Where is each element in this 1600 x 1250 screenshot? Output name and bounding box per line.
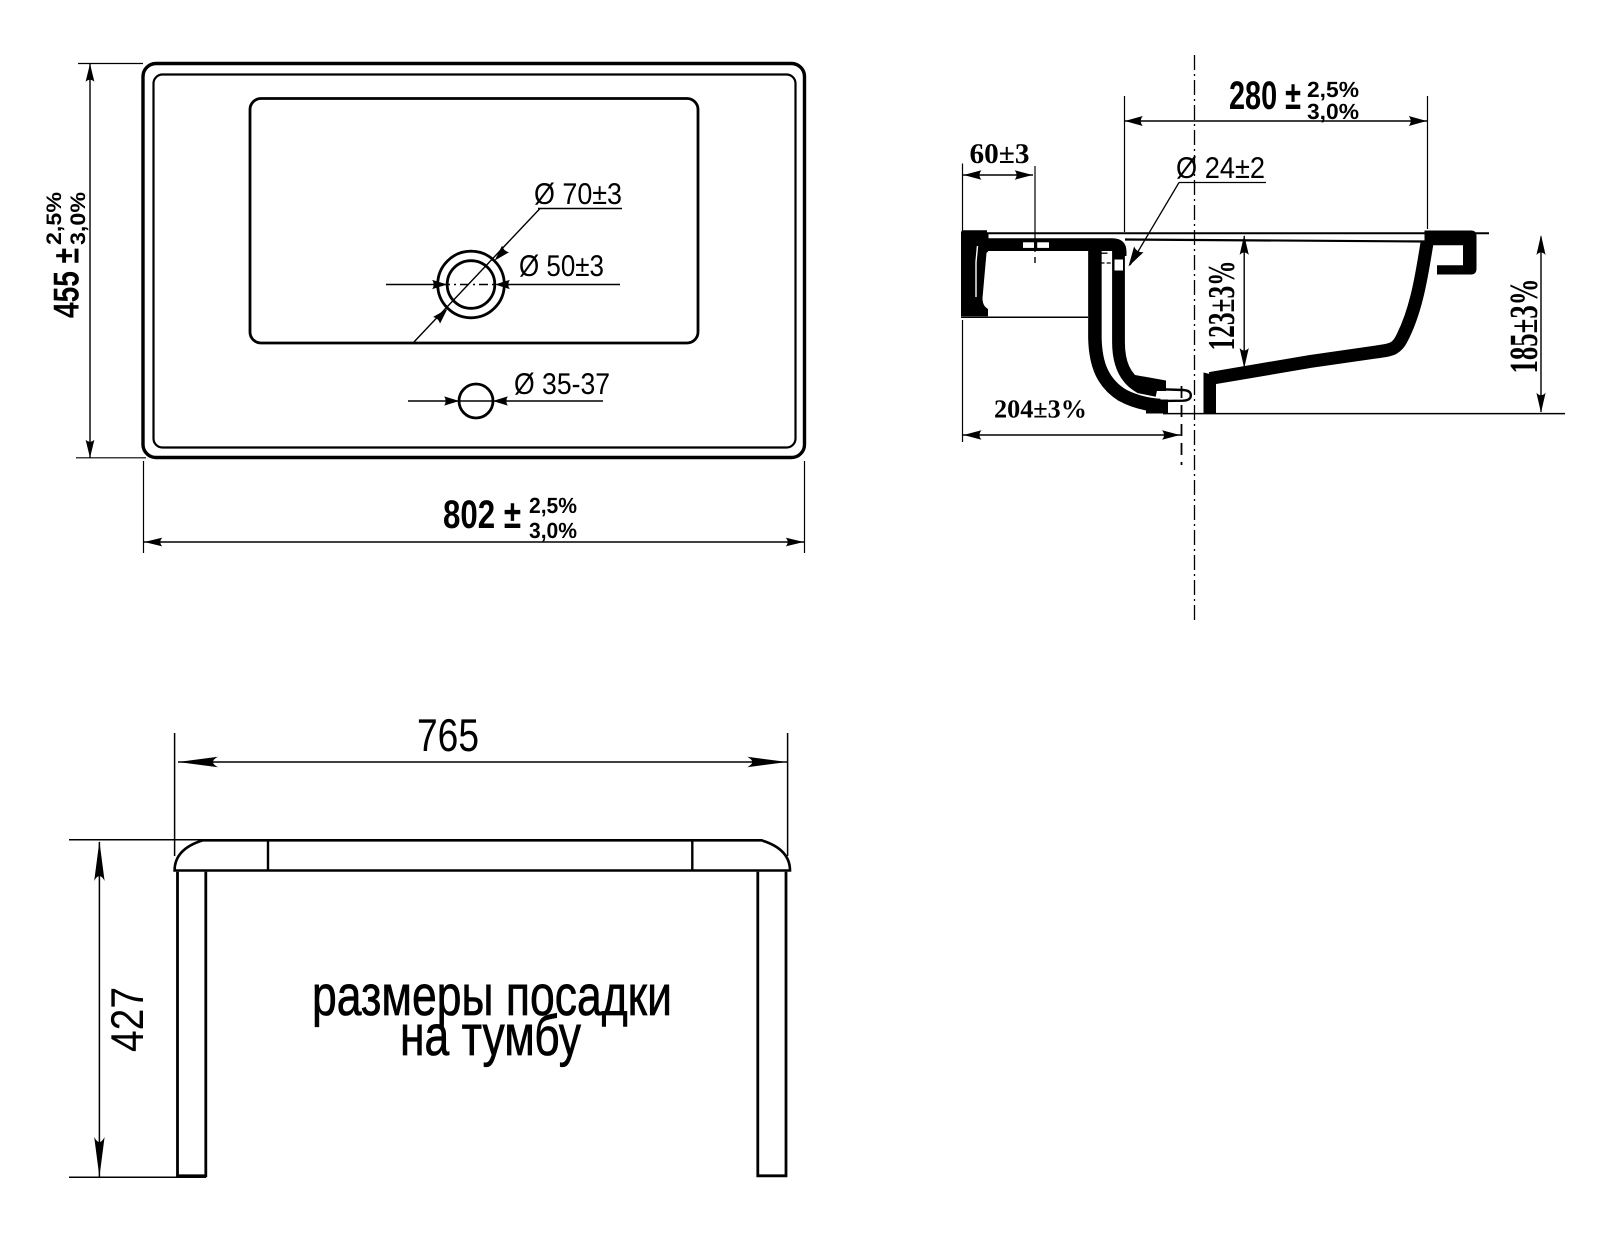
svg-text:185±3%: 185±3% [1501,279,1546,374]
svg-text:2,5%: 2,5% [43,192,66,245]
svg-text:204±3%: 204±3% [994,394,1087,423]
svg-text:на тумбу: на тумбу [400,1004,581,1068]
svg-text:3,0%: 3,0% [67,192,90,245]
svg-text:2,5%: 2,5% [529,493,577,518]
svg-text:60±3: 60±3 [970,139,1030,170]
svg-text:Ø 70±3: Ø 70±3 [534,178,622,211]
svg-text:280 ±: 280 ± [1229,74,1301,118]
svg-text:3,0%: 3,0% [1307,99,1359,124]
svg-text:765: 765 [417,709,479,761]
svg-text:427: 427 [101,987,153,1052]
svg-text:123±3%: 123±3% [1201,261,1243,351]
svg-text:Ø 50±3: Ø 50±3 [519,250,604,283]
svg-text:3,0%: 3,0% [529,518,577,543]
svg-text:Ø 24±2: Ø 24±2 [1176,152,1265,185]
svg-text:802 ±: 802 ± [443,493,521,537]
svg-text:Ø 35-37: Ø 35-37 [514,368,610,401]
svg-text:455 ±: 455 ± [46,248,87,318]
